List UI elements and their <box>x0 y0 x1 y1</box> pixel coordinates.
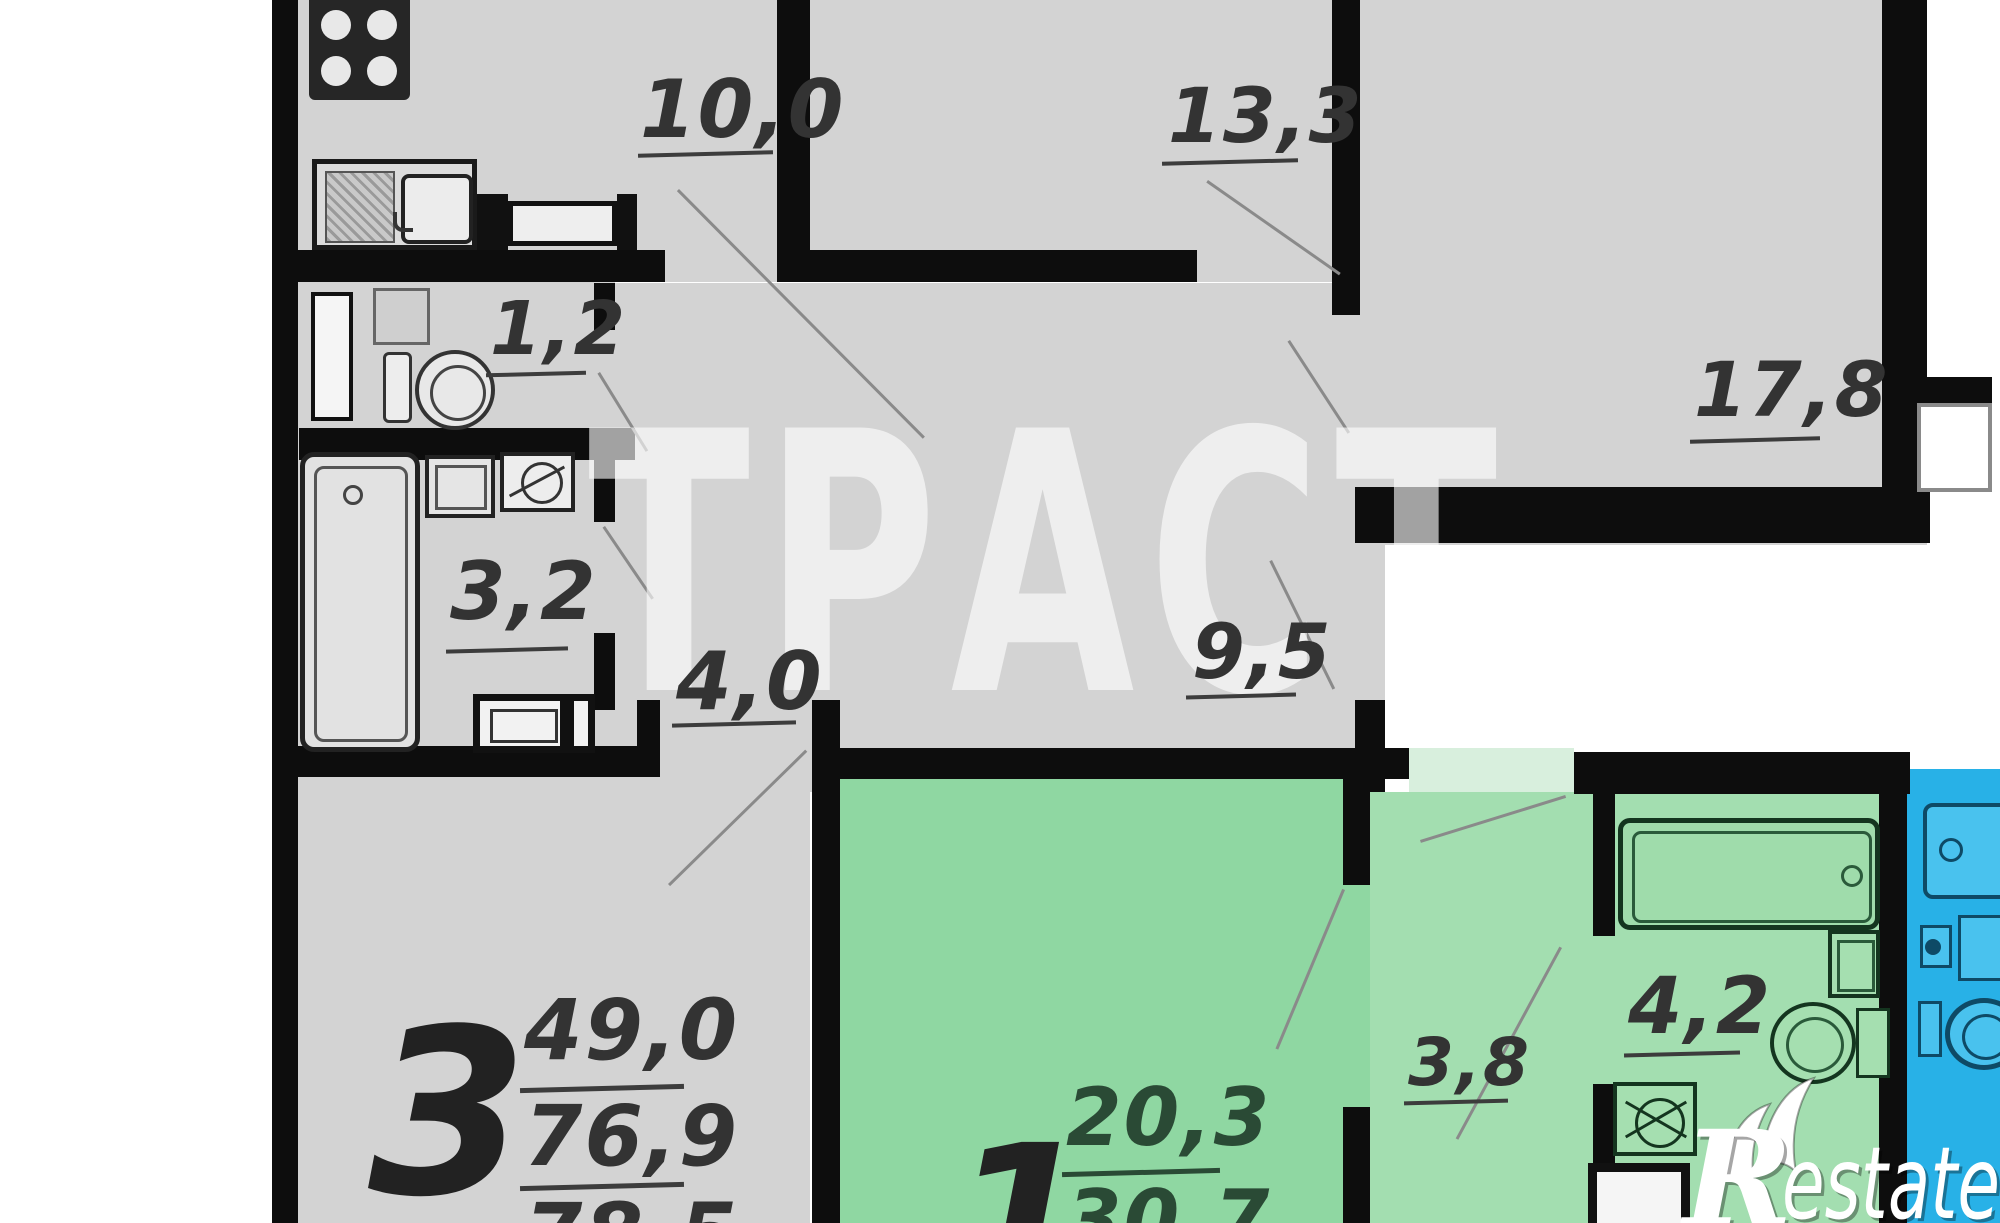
kitchen-appliance <box>508 201 617 246</box>
logo-r-letter: R <box>1679 1102 1793 1223</box>
restate-logo: R R estate estate <box>1640 1040 2000 1223</box>
wall-lobby-bottom <box>1574 752 1910 794</box>
bathtub-icon <box>300 452 420 752</box>
bath-drain-icon <box>343 485 363 505</box>
blue-bath-drain-icon <box>1939 838 1963 862</box>
bath-sink-icon <box>425 455 495 518</box>
wc-cistern-icon <box>373 288 430 345</box>
wall-right-jog <box>1927 377 1992 403</box>
wall-outer-left <box>272 0 298 1223</box>
wall-apt1-door-stub-bottom <box>1343 1107 1370 1223</box>
wall-kitchen-bottom <box>297 250 665 282</box>
apt1-bath-drain-icon <box>1841 865 1863 887</box>
apt3-rooms-count: 3 <box>368 1000 528 1223</box>
label-kitchen-area: 10,0 <box>640 70 845 150</box>
wall-bedroom-bottom <box>810 250 1197 282</box>
label-corridor-area: 9,5 <box>1192 614 1333 690</box>
kitchen-appliance-block-right <box>617 194 637 250</box>
apt1-total-area: 30,7 <box>1066 1180 1271 1223</box>
wall-apt1-door-stub-top <box>1343 779 1370 885</box>
logo-estate-text: estate <box>1782 1125 2000 1223</box>
kitchen-appliance-block-left <box>477 194 508 250</box>
kitchen-sink-basin-icon <box>401 174 473 244</box>
apt1-bathtub-icon <box>1618 818 1880 930</box>
label-bathroom-area: 3,2 <box>450 552 598 632</box>
faucet-icon <box>393 212 413 232</box>
label-bedroom-area: 13,3 <box>1168 78 1364 154</box>
blue-sink-icon <box>1958 915 2000 981</box>
label-apt1-hall-area: 3,8 <box>1408 1030 1531 1096</box>
kitchen-counter <box>312 159 477 250</box>
apt3-total-area: 76,9 <box>524 1094 739 1178</box>
apt1-room-area: 20,3 <box>1066 1078 1271 1158</box>
blue-bathtub-icon <box>1923 803 2000 899</box>
label-wc-area: 1,2 <box>490 292 627 366</box>
toilet-bowl-icon <box>415 350 495 430</box>
label-apt1-bath-area: 4,2 <box>1628 968 1772 1046</box>
floorplan-canvas: ТРАСТ 10,0 13,3 17,8 1,2 3,2 4,0 9,5 3,8… <box>0 0 2000 1223</box>
apt3-balcony-area: 78,5 <box>524 1192 739 1223</box>
washing-machine-icon <box>500 452 575 512</box>
label-living-area: 17,8 <box>1694 352 1890 428</box>
toilet-tank-icon <box>383 352 412 423</box>
blue-tap-unit-icon <box>1920 925 1952 968</box>
apt3-living-area: 49,0 <box>524 988 739 1072</box>
vent-shaft <box>311 292 353 421</box>
stove-icon <box>309 0 410 100</box>
kitchen-sink-unit-icon <box>325 171 395 243</box>
bath-cabinet <box>473 694 595 753</box>
label-hall-area: 4,0 <box>676 642 824 722</box>
apt1-sink-icon <box>1828 930 1880 998</box>
wall-bath2-stub-top <box>1593 794 1615 936</box>
wall-apt1-left <box>812 700 840 1223</box>
balcony-outline <box>1917 403 1992 492</box>
